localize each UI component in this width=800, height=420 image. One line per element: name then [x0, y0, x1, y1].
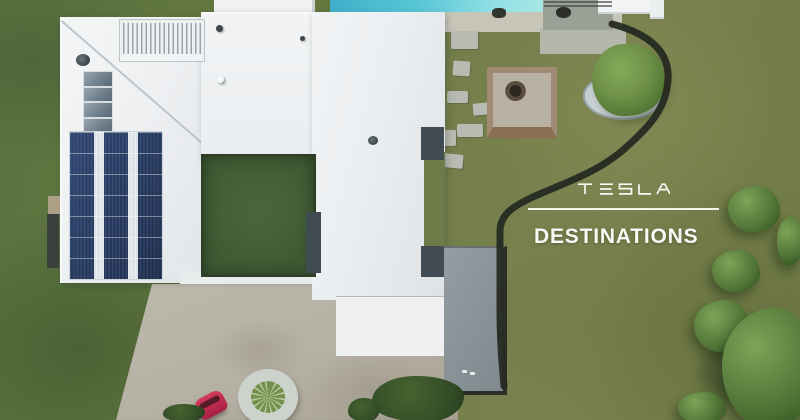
overlay-title: DESTINATIONS [534, 225, 734, 249]
edging-path [500, 24, 668, 386]
tree [712, 250, 760, 292]
garden-bush [372, 376, 464, 420]
tree [777, 216, 800, 266]
overlay-divider-line [528, 208, 719, 210]
garden-bush [163, 404, 205, 420]
aerial-photo: TESLA DESTINATIONS [0, 0, 800, 420]
tesla-wordmark-glyphs [577, 183, 670, 195]
round-palm-planter [238, 369, 298, 420]
garden-bush [348, 398, 380, 420]
tree [728, 186, 780, 232]
garden-edging-curve [0, 0, 800, 420]
tree [678, 392, 726, 420]
tesla-wordmark-icon: TESLA [577, 182, 670, 194]
deck-railing [544, 2, 612, 6]
